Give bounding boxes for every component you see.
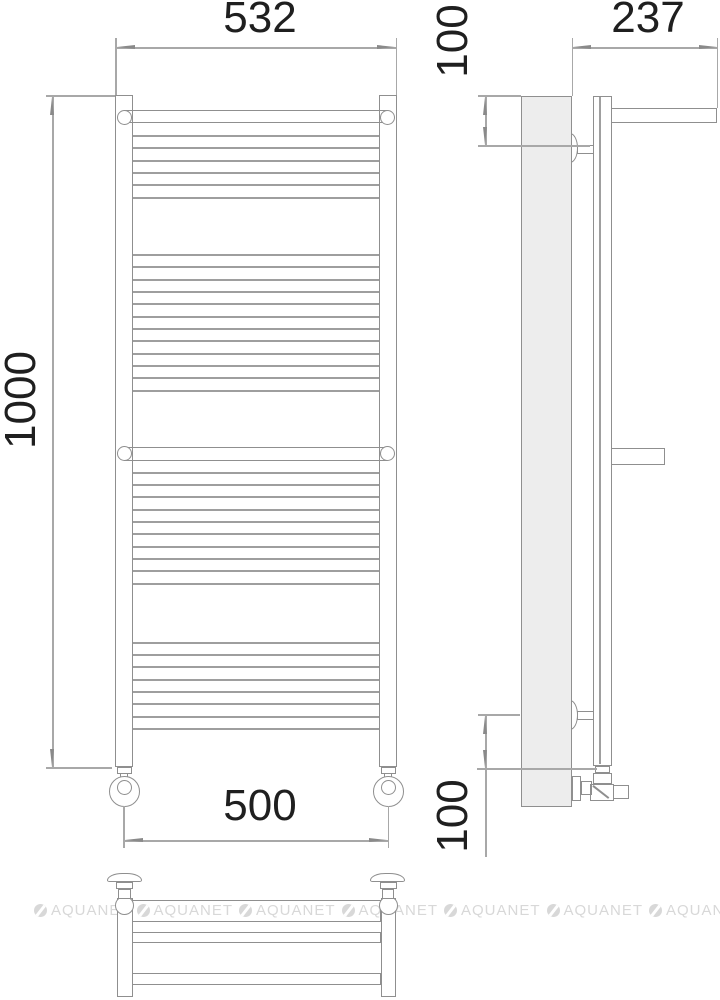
arrow-100t-down	[483, 127, 487, 145]
arrow-100b-up	[483, 716, 487, 734]
ext-237-left	[572, 38, 574, 96]
dim-side-bottom-offset: 100	[431, 756, 475, 876]
ext-100t-upper	[478, 95, 521, 97]
ext-237-right	[717, 38, 719, 108]
ext-100t-lower	[478, 145, 590, 147]
arrow-237-left	[573, 45, 591, 49]
technical-drawing: AQUANETAQUANETAQUANETAQUANETAQUANETAQUAN…	[0, 0, 720, 1000]
arrow-237-right	[699, 45, 717, 49]
dim-side-top-offset: 100	[431, 0, 475, 101]
dim-line-237	[572, 47, 718, 49]
arrow-100b-down	[483, 750, 487, 768]
dim-side-shelf-depth: 237	[588, 0, 708, 40]
arrow-100t-up	[483, 97, 487, 115]
ext-100b-upper	[478, 714, 520, 716]
dim-line-100-bottom	[485, 715, 487, 857]
ext-100b-lower	[477, 768, 597, 770]
side-dimensions: 237 100 100	[0, 0, 720, 1000]
